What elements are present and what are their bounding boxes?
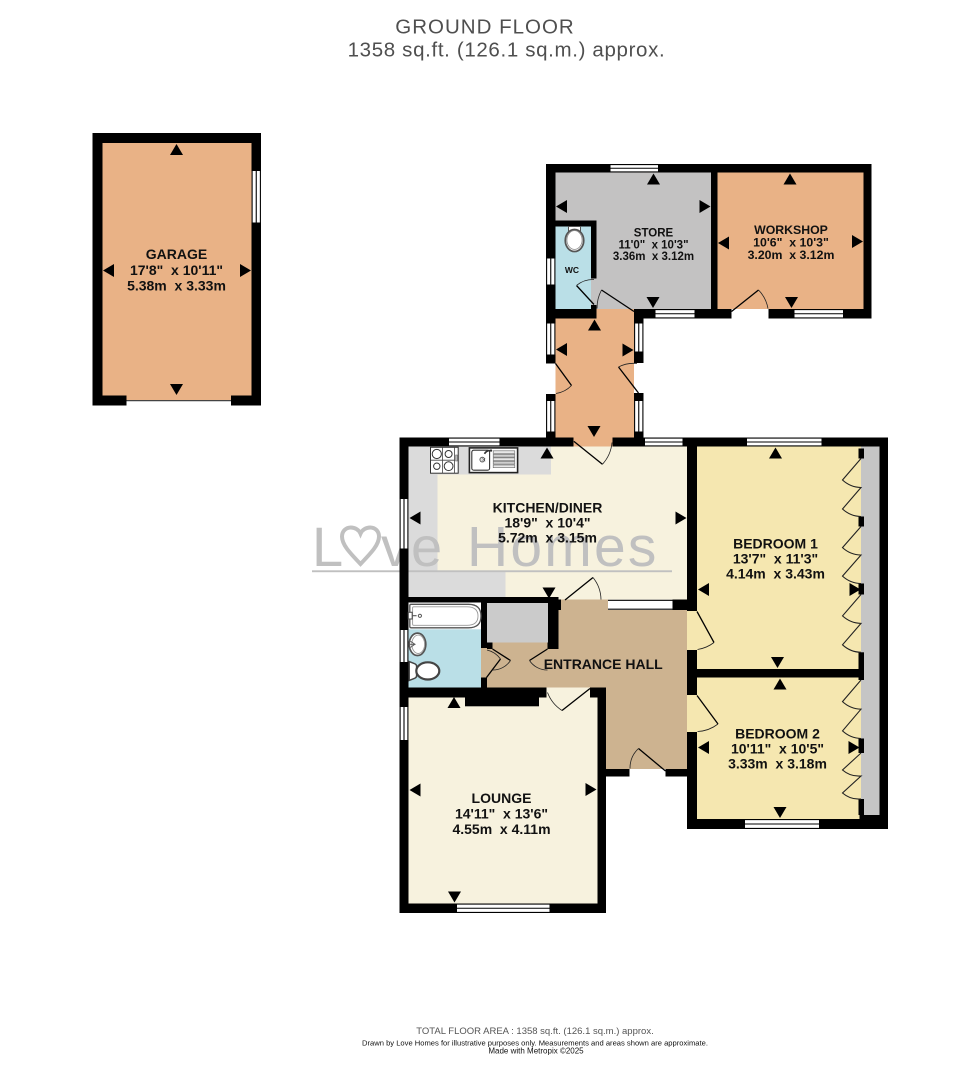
svg-text:3.20m x 3.12m: 3.20m x 3.12m (748, 248, 835, 262)
svg-text:3.33m x 3.18m: 3.33m x 3.18m (728, 755, 827, 771)
svg-text:4.14m x 3.43m: 4.14m x 3.43m (726, 565, 825, 581)
svg-text:Made with Metropix ©2025: Made with Metropix ©2025 (488, 1047, 584, 1056)
svg-text:BEDROOM 1: BEDROOM 1 (733, 535, 818, 551)
svg-text:GROUND FLOOR: GROUND FLOOR (395, 16, 574, 39)
svg-text:18'9" x 10'4": 18'9" x 10'4" (504, 514, 590, 530)
svg-text:11'0" x 10'3": 11'0" x 10'3" (618, 239, 688, 251)
svg-text:GARAGE: GARAGE (146, 246, 207, 262)
svg-text:STORE: STORE (634, 228, 674, 240)
svg-text:BEDROOM 2: BEDROOM 2 (735, 726, 820, 742)
svg-text:10'11" x 10'5": 10'11" x 10'5" (731, 740, 824, 756)
svg-text:WC: WC (565, 265, 579, 275)
svg-text:TOTAL FLOOR AREA : 1358 sq.ft.: TOTAL FLOOR AREA : 1358 sq.ft. (126.1 sq… (416, 1026, 653, 1037)
svg-text:1358 sq.ft. (126.1 sq.m.) appr: 1358 sq.ft. (126.1 sq.m.) approx. (348, 39, 666, 62)
svg-text:5.38m x 3.33m: 5.38m x 3.33m (127, 277, 226, 293)
svg-text:L: L (312, 515, 343, 578)
svg-text:17'8" x 10'11": 17'8" x 10'11" (130, 262, 223, 278)
svg-text:13'7" x 11'3": 13'7" x 11'3" (733, 550, 818, 566)
svg-text:ENTRANCE HALL: ENTRANCE HALL (544, 656, 663, 672)
svg-text:KITCHEN/DINER: KITCHEN/DINER (493, 499, 603, 515)
svg-text:3.36m x 3.12m: 3.36m x 3.12m (613, 251, 694, 263)
svg-text:5.72m x 3.15m: 5.72m x 3.15m (498, 529, 597, 545)
svg-text:LOUNGE: LOUNGE (472, 790, 532, 806)
svg-text:4.55m x 4.11m: 4.55m x 4.11m (452, 821, 550, 837)
svg-text:ve: ve (381, 515, 444, 578)
svg-text:14'11" x 13'6": 14'11" x 13'6" (455, 806, 548, 822)
